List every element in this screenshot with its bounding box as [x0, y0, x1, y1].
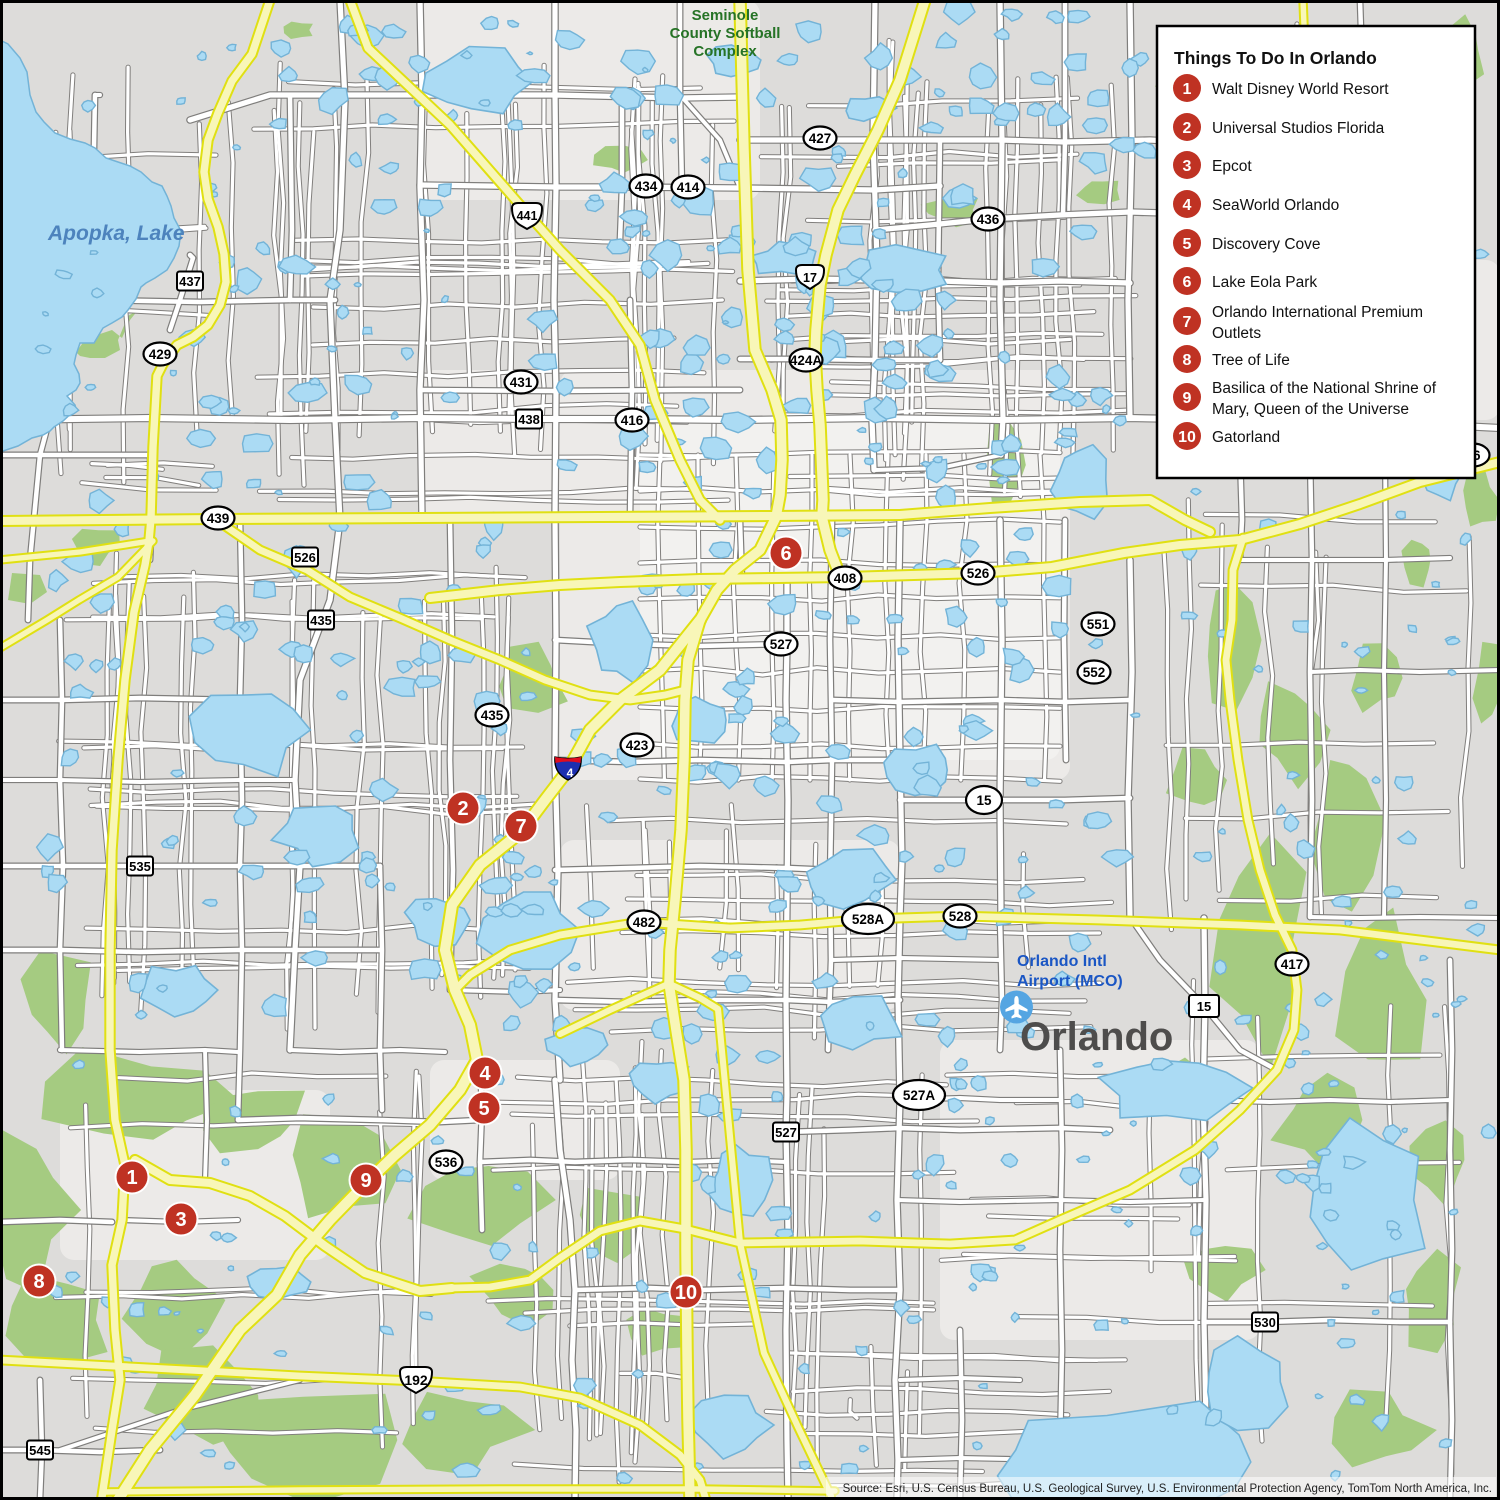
svg-text:1: 1 — [1183, 81, 1192, 98]
svg-text:437: 437 — [179, 274, 201, 289]
svg-text:3: 3 — [175, 1209, 186, 1231]
svg-text:15: 15 — [976, 793, 992, 808]
svg-text:417: 417 — [1281, 957, 1304, 972]
svg-text:527: 527 — [770, 637, 793, 652]
svg-text:17: 17 — [803, 271, 817, 285]
svg-text:SeaWorld Orlando: SeaWorld Orlando — [1212, 197, 1339, 214]
svg-text:527: 527 — [775, 1125, 797, 1140]
svg-text:9: 9 — [360, 1170, 371, 1192]
svg-text:526: 526 — [294, 550, 316, 565]
svg-text:Source: Esri, U.S. Census Bure: Source: Esri, U.S. Census Bureau, U.S. G… — [843, 1483, 1492, 1495]
svg-text:528: 528 — [949, 909, 972, 924]
svg-text:Tree of Life: Tree of Life — [1212, 352, 1290, 369]
svg-text:482: 482 — [633, 915, 656, 930]
svg-text:Lake Eola Park: Lake Eola Park — [1212, 274, 1317, 291]
svg-text:Orlando International Premium: Orlando International Premium — [1212, 304, 1423, 321]
svg-text:439: 439 — [207, 511, 230, 526]
svg-text:431: 431 — [510, 375, 533, 390]
svg-text:1: 1 — [126, 1167, 137, 1189]
svg-text:2: 2 — [1183, 120, 1192, 137]
svg-text:536: 536 — [435, 1155, 458, 1170]
svg-text:552: 552 — [1083, 665, 1106, 680]
svg-text:Apopka, Lake: Apopka, Lake — [47, 222, 185, 245]
svg-text:530: 530 — [1254, 1315, 1276, 1330]
svg-text:Orlando Intl: Orlando Intl — [1017, 953, 1107, 970]
svg-text:528A: 528A — [852, 912, 885, 927]
svg-text:545: 545 — [29, 1443, 51, 1458]
svg-text:9: 9 — [1183, 390, 1192, 407]
svg-text:435: 435 — [310, 613, 332, 628]
svg-text:6: 6 — [1183, 274, 1192, 291]
svg-text:10: 10 — [1178, 429, 1196, 446]
svg-text:408: 408 — [834, 571, 857, 586]
svg-text:Epcot: Epcot — [1212, 158, 1252, 175]
svg-text:192: 192 — [404, 1372, 428, 1388]
svg-text:Things To Do In Orlando: Things To Do In Orlando — [1174, 48, 1377, 68]
svg-text:Mary, Queen of the Universe: Mary, Queen of the Universe — [1212, 401, 1409, 418]
svg-text:Outlets: Outlets — [1212, 325, 1261, 342]
svg-text:7: 7 — [1183, 314, 1192, 331]
svg-text:Discovery Cove: Discovery Cove — [1212, 236, 1321, 253]
svg-text:438: 438 — [518, 412, 540, 427]
svg-text:4: 4 — [479, 1063, 491, 1085]
svg-text:414: 414 — [677, 180, 700, 195]
svg-text:434: 434 — [635, 179, 658, 194]
svg-text:427: 427 — [809, 131, 832, 146]
svg-text:551: 551 — [1087, 617, 1110, 632]
svg-text:Universal Studios Florida: Universal Studios Florida — [1212, 120, 1385, 137]
svg-text:Airport (MCO): Airport (MCO) — [1017, 973, 1123, 990]
svg-text:Complex: Complex — [693, 43, 757, 60]
svg-text:Seminole: Seminole — [692, 7, 759, 24]
svg-text:8: 8 — [33, 1271, 44, 1293]
svg-text:2: 2 — [457, 798, 468, 820]
svg-text:4: 4 — [1183, 197, 1192, 214]
svg-text:527A: 527A — [903, 1088, 936, 1103]
svg-text:423: 423 — [626, 738, 649, 753]
svg-text:416: 416 — [621, 413, 644, 428]
svg-text:424A: 424A — [790, 353, 823, 368]
svg-text:435: 435 — [481, 708, 504, 723]
svg-text:Walt Disney World Resort: Walt Disney World Resort — [1212, 81, 1389, 98]
svg-text:Gatorland: Gatorland — [1212, 429, 1280, 446]
svg-text:3: 3 — [1183, 158, 1192, 175]
svg-text:535: 535 — [129, 859, 151, 874]
svg-text:Orlando: Orlando — [1020, 1015, 1173, 1059]
svg-text:15: 15 — [1197, 999, 1211, 1014]
svg-text:7: 7 — [515, 816, 526, 838]
svg-text:5: 5 — [1183, 236, 1192, 253]
svg-text:County Softball: County Softball — [670, 25, 781, 42]
svg-text:Basilica of the National Shrin: Basilica of the National Shrine of — [1212, 380, 1437, 397]
svg-text:441: 441 — [517, 209, 538, 223]
svg-text:10: 10 — [675, 1282, 697, 1304]
svg-text:5: 5 — [478, 1098, 489, 1120]
svg-text:526: 526 — [967, 566, 990, 581]
svg-text:8: 8 — [1183, 352, 1192, 369]
svg-text:4: 4 — [567, 766, 574, 780]
svg-text:6: 6 — [780, 543, 791, 565]
svg-text:429: 429 — [149, 347, 172, 362]
svg-text:436: 436 — [977, 212, 1000, 227]
